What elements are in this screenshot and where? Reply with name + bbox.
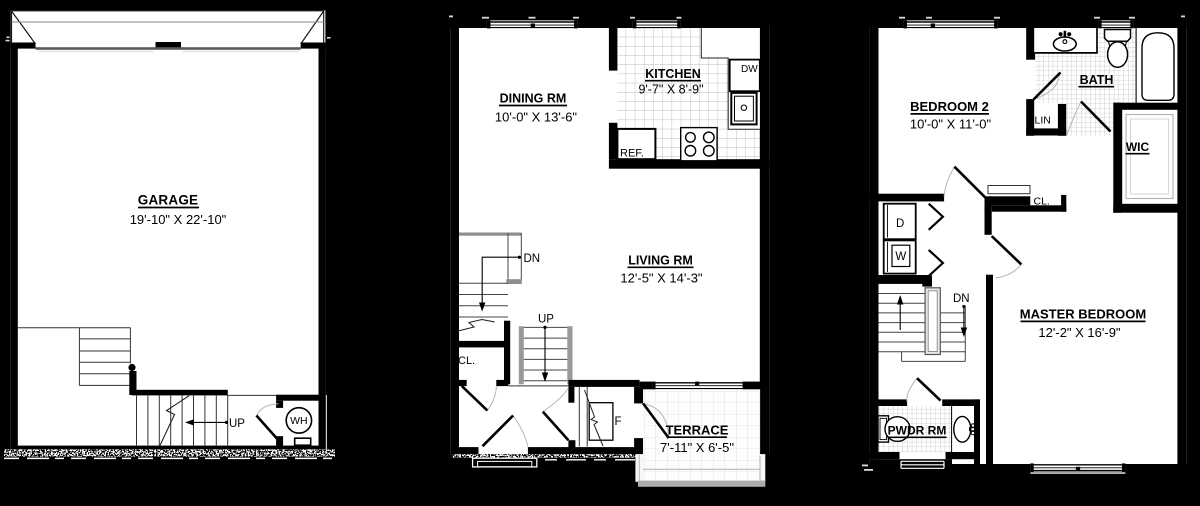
svg-text:F: F [615, 416, 622, 428]
svg-text:LIVING RM: LIVING RM [628, 254, 693, 268]
svg-text:DN: DN [524, 253, 541, 265]
svg-text:WIC: WIC [1126, 140, 1150, 154]
svg-text:BATH: BATH [1080, 73, 1114, 87]
svg-text:BEDROOM 2: BEDROOM 2 [910, 99, 989, 114]
svg-text:TERRACE: TERRACE [666, 423, 729, 438]
svg-text:10'-0" X 11'-0": 10'-0" X 11'-0" [910, 117, 992, 132]
svg-text:10'-0" X 13'-6": 10'-0" X 13'-6" [495, 110, 578, 125]
svg-text:12'-5" X 14'-3": 12'-5" X 14'-3" [620, 271, 703, 286]
svg-text:UP: UP [229, 418, 245, 430]
svg-text:KITCHEN: KITCHEN [645, 67, 701, 81]
svg-text:PWDR RM: PWDR RM [888, 424, 947, 438]
svg-text:WH: WH [290, 415, 308, 427]
svg-text:DN: DN [953, 293, 970, 305]
svg-text:19'-10" X 22'-10": 19'-10" X 22'-10" [130, 212, 227, 227]
svg-text:7'-11" X 6'-5": 7'-11" X 6'-5" [660, 440, 734, 455]
svg-text:REF.: REF. [620, 148, 644, 160]
svg-text:CL.: CL. [458, 355, 475, 367]
svg-text:W: W [895, 251, 906, 263]
svg-text:LIN: LIN [1035, 115, 1051, 127]
svg-text:D: D [896, 218, 904, 230]
svg-text:12'-2" X 16'-9": 12'-2" X 16'-9" [1038, 325, 1121, 340]
svg-text:DINING RM: DINING RM [500, 92, 567, 106]
svg-text:GARAGE: GARAGE [138, 193, 198, 208]
svg-text:9'-7" X 8'-9": 9'-7" X 8'-9" [638, 83, 703, 97]
svg-text:MASTER BEDROOM: MASTER BEDROOM [1020, 307, 1146, 322]
svg-text:UP: UP [538, 314, 554, 326]
svg-text:DW: DW [741, 64, 758, 75]
